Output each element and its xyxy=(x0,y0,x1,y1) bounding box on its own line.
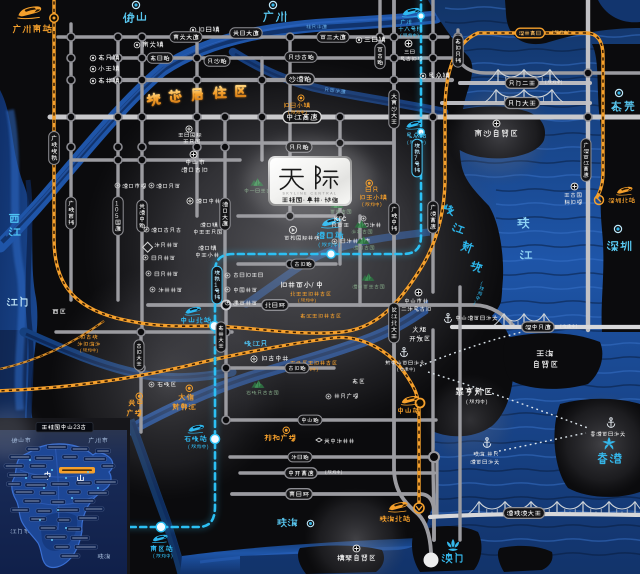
svg-text:3: 3 xyxy=(77,424,81,431)
svg-text:(: ( xyxy=(318,243,320,249)
svg-text:5: 5 xyxy=(115,213,119,220)
svg-text:(: ( xyxy=(188,444,190,450)
svg-text:): ) xyxy=(339,243,341,249)
svg-text:(: ( xyxy=(466,400,468,406)
svg-text:·: · xyxy=(303,197,305,204)
svg-text:·: · xyxy=(321,197,323,204)
svg-text:): ) xyxy=(207,444,209,450)
svg-text:): ) xyxy=(486,400,488,406)
svg-text:SKYLINE CENTRAL: SKYLINE CENTRAL xyxy=(282,192,337,196)
